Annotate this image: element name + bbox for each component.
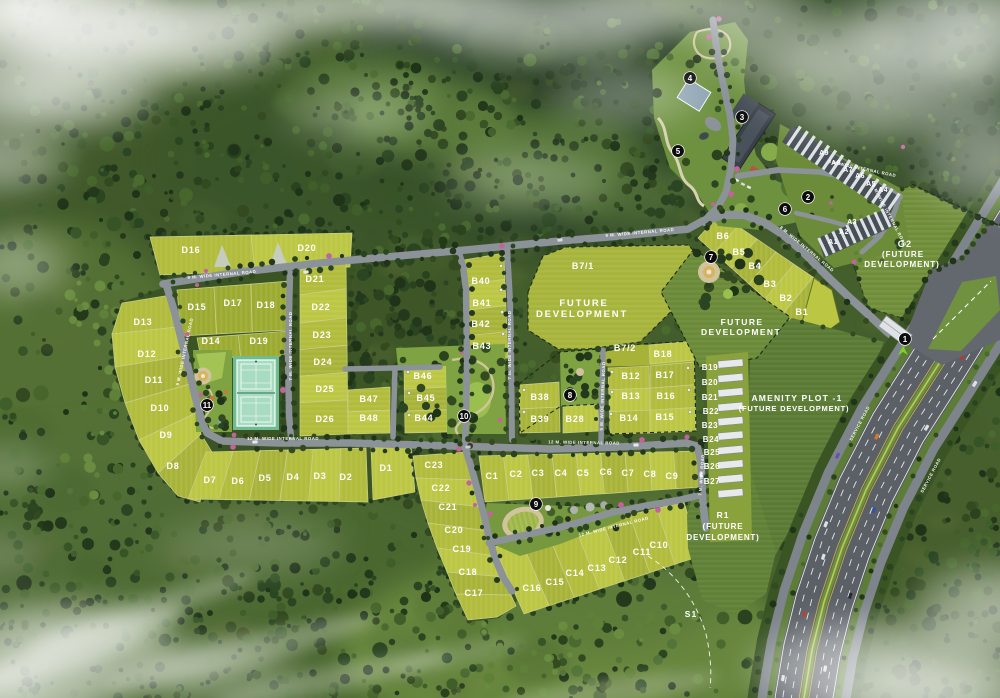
svg-text:B17: B17 [656, 370, 675, 380]
svg-text:B6: B6 [716, 231, 729, 241]
svg-text:B4: B4 [748, 261, 761, 271]
svg-text:D14: D14 [202, 336, 221, 346]
svg-text:9: 9 [534, 500, 539, 509]
svg-text:D20: D20 [298, 243, 317, 253]
svg-text:D1: D1 [379, 463, 392, 473]
svg-text:11: 11 [203, 401, 212, 410]
svg-text:B13: B13 [622, 391, 641, 401]
svg-text:1: 1 [903, 335, 908, 344]
svg-text:7: 7 [709, 253, 714, 262]
svg-text:C16: C16 [523, 583, 542, 593]
svg-text:(FUTURE DEVELOPMENT): (FUTURE DEVELOPMENT) [739, 404, 850, 413]
svg-text:C11: C11 [633, 547, 651, 557]
svg-text:5: 5 [676, 147, 681, 156]
svg-text:C8: C8 [643, 469, 656, 479]
svg-text:D11: D11 [145, 375, 163, 385]
svg-text:D9: D9 [159, 430, 172, 440]
svg-text:12 M. WIDE INTERNAL ROAD: 12 M. WIDE INTERNAL ROAD [247, 436, 319, 441]
svg-text:B46: B46 [414, 371, 433, 381]
svg-text:D6: D6 [231, 476, 244, 486]
svg-text:B5: B5 [732, 247, 745, 257]
svg-text:B16: B16 [657, 391, 676, 401]
svg-text:C9: C9 [665, 471, 678, 481]
svg-text:7 M. WIDE INTERNAL ROAD: 7 M. WIDE INTERNAL ROAD [288, 312, 293, 381]
svg-text:D2: D2 [339, 472, 352, 482]
svg-text:A2: A2 [839, 229, 849, 236]
svg-text:B14: B14 [620, 413, 639, 423]
svg-text:B1: B1 [795, 307, 808, 317]
svg-text:C5: C5 [576, 468, 589, 478]
svg-text:D23: D23 [313, 330, 332, 340]
svg-text:B40: B40 [472, 276, 491, 286]
svg-text:FUTURE: FUTURE [559, 298, 608, 309]
svg-text:D3: D3 [313, 471, 326, 481]
svg-text:C15: C15 [546, 577, 565, 587]
svg-text:D16: D16 [182, 245, 201, 255]
svg-text:C7: C7 [621, 468, 634, 478]
svg-text:B42: B42 [472, 319, 491, 329]
svg-text:C12: C12 [609, 555, 628, 565]
svg-text:DEVELOPMENT: DEVELOPMENT [536, 309, 628, 320]
svg-text:C21: C21 [439, 502, 458, 512]
svg-text:C1: C1 [485, 471, 498, 481]
svg-text:10: 10 [460, 412, 469, 421]
svg-text:B41: B41 [473, 298, 492, 308]
svg-text:6: 6 [783, 205, 788, 214]
svg-text:A3: A3 [847, 219, 857, 226]
svg-text:B28: B28 [566, 414, 585, 424]
svg-text:D15: D15 [188, 302, 207, 312]
svg-text:(FUTURE: (FUTURE [882, 250, 924, 259]
svg-text:B19: B19 [702, 363, 718, 372]
svg-text:R1: R1 [717, 510, 730, 520]
svg-text:B12: B12 [622, 371, 641, 381]
svg-text:AMENITY PLOT -1: AMENITY PLOT -1 [751, 393, 842, 403]
svg-text:B15: B15 [656, 412, 675, 422]
svg-text:3: 3 [740, 113, 745, 122]
svg-text:A9: A9 [819, 150, 829, 157]
svg-text:D13: D13 [134, 317, 153, 327]
svg-text:B2: B2 [779, 293, 792, 303]
svg-text:D25: D25 [316, 384, 335, 394]
svg-text:C2: C2 [509, 469, 522, 479]
svg-text:D21: D21 [306, 274, 325, 284]
svg-text:C14: C14 [566, 568, 585, 578]
svg-text:B47: B47 [360, 394, 379, 404]
svg-text:B7/1: B7/1 [572, 261, 594, 271]
svg-text:A6: A6 [855, 173, 865, 180]
svg-text:C6: C6 [599, 467, 612, 477]
svg-text:D10: D10 [151, 403, 170, 413]
svg-text:C20: C20 [445, 525, 464, 535]
svg-text:C22: C22 [432, 483, 451, 493]
svg-text:D17: D17 [224, 298, 243, 308]
svg-text:D18: D18 [257, 300, 276, 310]
svg-text:D22: D22 [312, 302, 331, 312]
svg-text:DEVELOPMENT): DEVELOPMENT) [686, 533, 759, 542]
svg-text:(FUTURE: (FUTURE [703, 522, 744, 531]
svg-text:B3: B3 [763, 279, 776, 289]
svg-text:B23: B23 [702, 421, 718, 430]
svg-text:C17: C17 [465, 588, 484, 598]
svg-text:8: 8 [568, 391, 573, 400]
svg-text:DEVELOPMENT): DEVELOPMENT) [864, 260, 940, 269]
svg-text:B48: B48 [360, 413, 379, 423]
svg-text:S1: S1 [685, 609, 697, 619]
svg-text:2: 2 [806, 193, 811, 202]
svg-text:B26: B26 [704, 462, 720, 471]
svg-text:C13: C13 [588, 563, 607, 573]
svg-text:FUTURE: FUTURE [721, 317, 764, 327]
svg-text:B22: B22 [703, 407, 719, 416]
svg-text:C4: C4 [554, 468, 567, 478]
svg-text:B45: B45 [417, 393, 436, 403]
svg-text:B38: B38 [531, 392, 550, 402]
svg-text:B44: B44 [415, 413, 434, 423]
svg-text:D8: D8 [166, 461, 179, 471]
svg-text:B27: B27 [704, 477, 720, 486]
svg-text:D19: D19 [250, 336, 269, 346]
svg-text:A1: A1 [828, 239, 838, 246]
svg-text:D5: D5 [258, 473, 271, 483]
svg-text:DEVELOPMENT: DEVELOPMENT [701, 327, 781, 337]
svg-text:D26: D26 [316, 414, 335, 424]
svg-text:B39: B39 [531, 414, 550, 424]
svg-text:B24: B24 [703, 435, 719, 444]
svg-text:C23: C23 [425, 460, 444, 470]
svg-text:C19: C19 [453, 544, 472, 554]
svg-text:B25: B25 [704, 448, 720, 457]
svg-text:B43: B43 [473, 341, 492, 351]
svg-text:B7/2: B7/2 [614, 343, 636, 353]
svg-text:7 M. WIDE INTERNAL ROAD: 7 M. WIDE INTERNAL ROAD [507, 311, 512, 380]
svg-text:D7: D7 [203, 475, 216, 485]
svg-text:B20: B20 [702, 378, 718, 387]
svg-text:D24: D24 [314, 357, 333, 367]
svg-text:C18: C18 [459, 567, 478, 577]
svg-text:D12: D12 [138, 349, 157, 359]
svg-text:C3: C3 [531, 468, 544, 478]
svg-text:B18: B18 [654, 349, 673, 359]
svg-text:B21: B21 [702, 393, 718, 402]
svg-text:C10: C10 [650, 540, 669, 550]
svg-text:D4: D4 [286, 472, 299, 482]
